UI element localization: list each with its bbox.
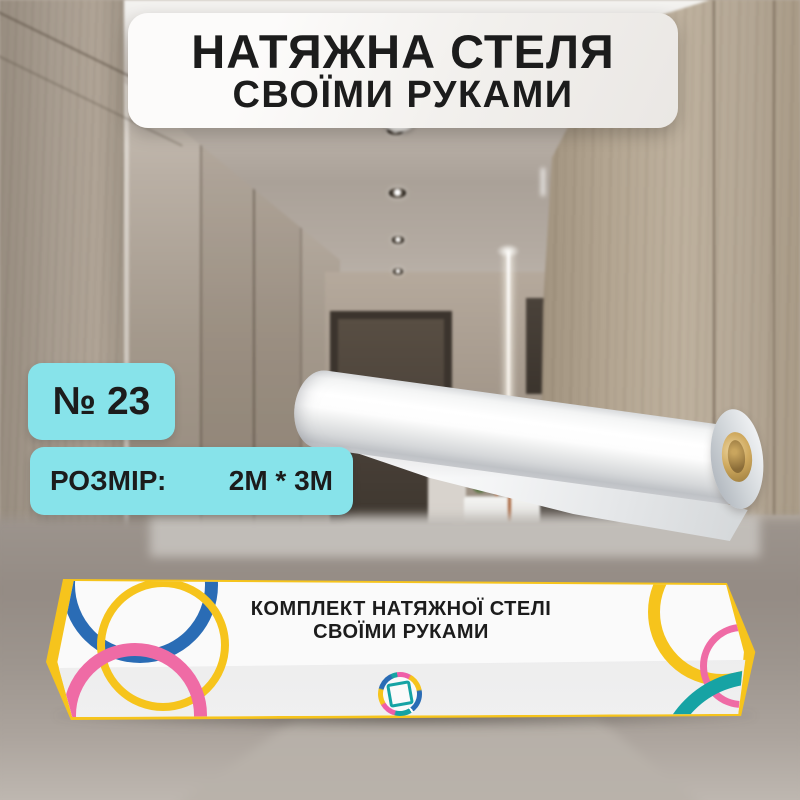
- size-badge: РОЗМІР: 2М * 3М: [30, 447, 353, 515]
- product-number-label: № 23: [53, 380, 151, 424]
- size-badge-label: РОЗМІР:: [50, 465, 166, 497]
- box-title-line1: КОМПЛЕКТ НАТЯЖНОЇ СТЕЛІ: [46, 598, 756, 621]
- logo-square-icon: [386, 680, 414, 708]
- product-box: КОМПЛЕКТ НАТЯЖНОЇ СТЕЛІ СВОЇМИ РУКАМИ: [46, 578, 756, 722]
- title-banner: НАТЯЖНА СТЕЛЯ СВОЇМИ РУКАМИ: [128, 13, 678, 128]
- banner-title-line2: СВОЇМИ РУКАМИ: [232, 76, 573, 114]
- logo-inner-circle: [381, 675, 419, 713]
- product-listing-image: НАТЯЖНА СТЕЛЯ СВОЇМИ РУКАМИ № 23 РОЗМІР:…: [0, 0, 800, 800]
- box-title-line2: СВОЇМИ РУКАМИ: [46, 621, 756, 644]
- size-badge-value: 2М * 3М: [229, 465, 333, 497]
- box-title: КОМПЛЕКТ НАТЯЖНОЇ СТЕЛІ СВОЇМИ РУКАМИ: [46, 598, 756, 644]
- banner-title-line1: НАТЯЖНА СТЕЛЯ: [191, 27, 614, 76]
- product-number-badge: № 23: [28, 363, 175, 440]
